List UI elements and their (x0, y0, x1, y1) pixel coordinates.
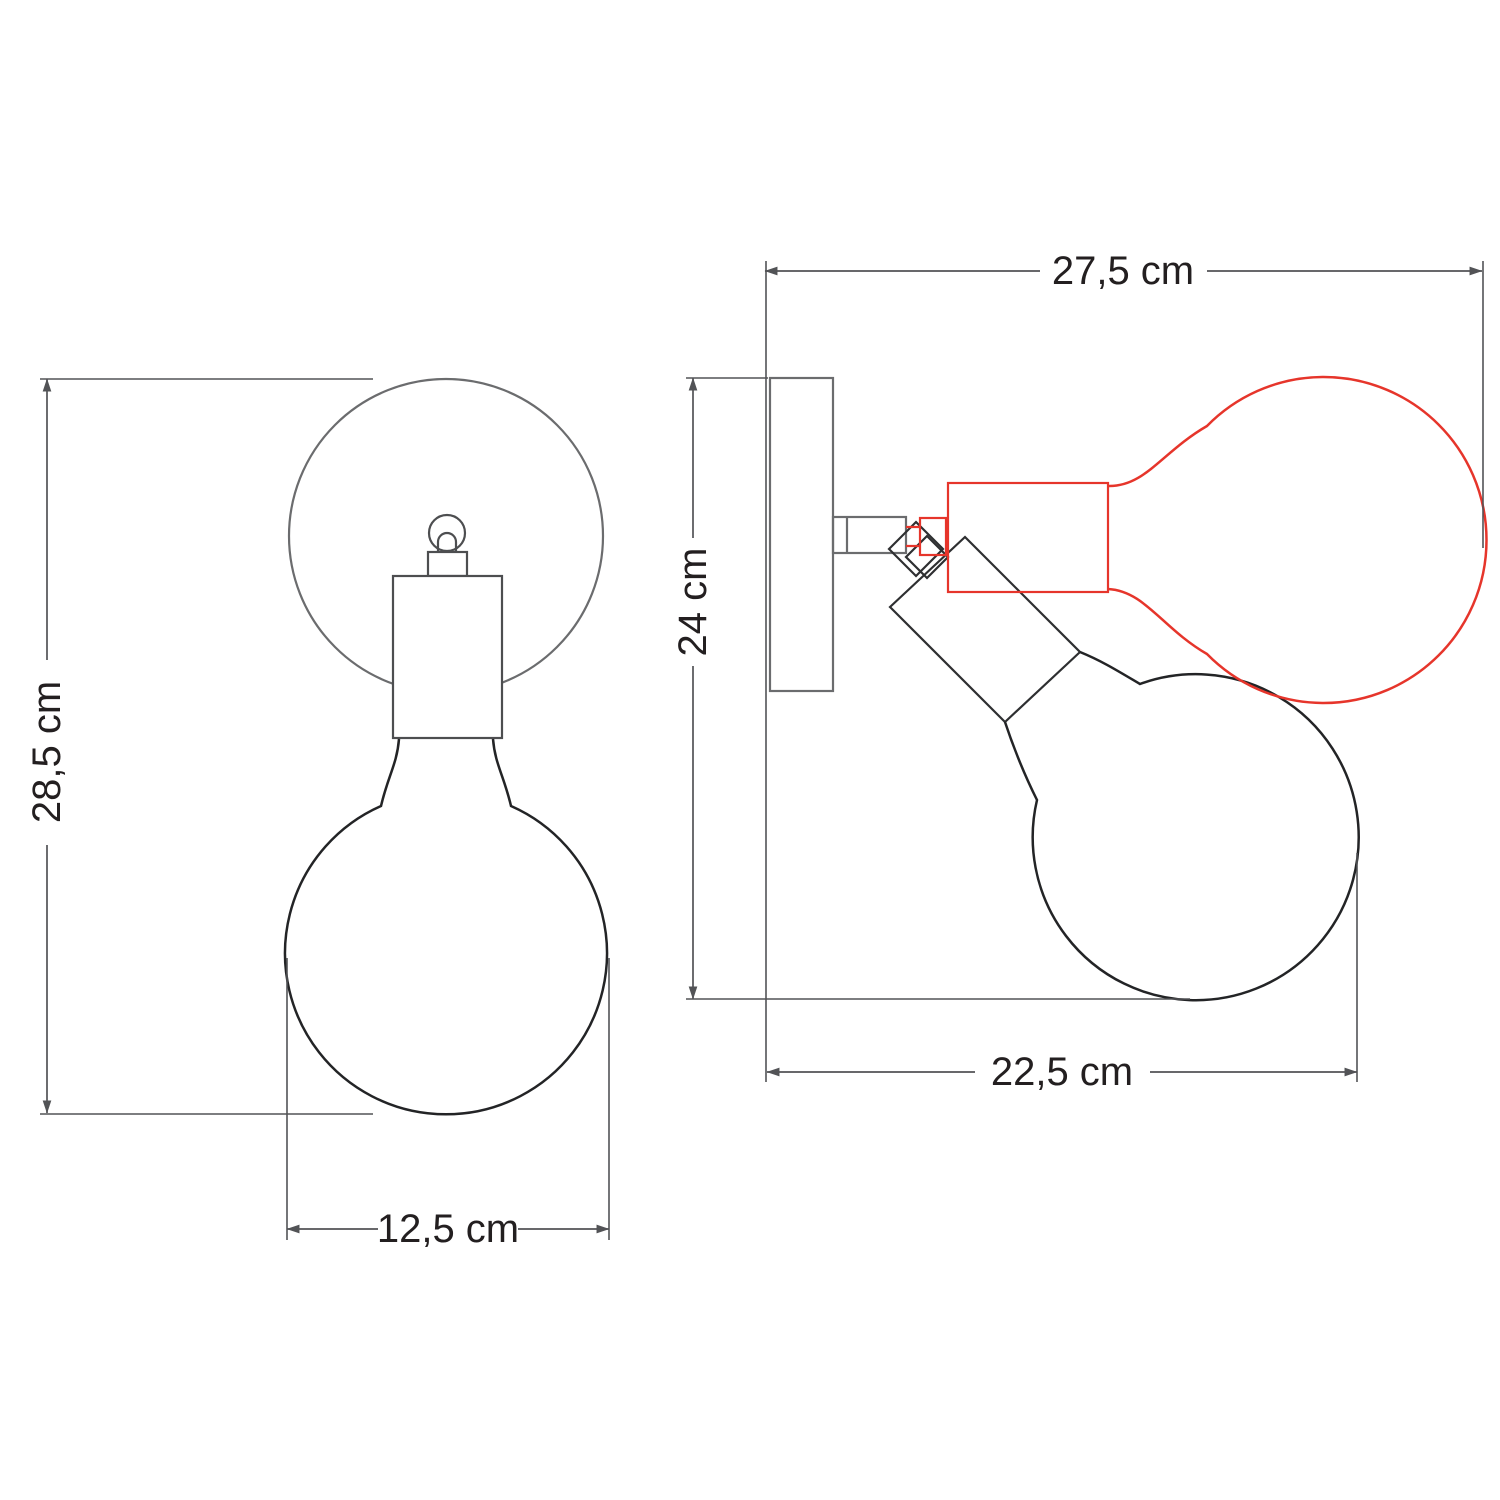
side-bottom-width-label: 22,5 cm (991, 1050, 1133, 1094)
side-height-label: 24 cm (671, 548, 715, 657)
side-pivot-arm (833, 517, 906, 553)
side-bottom-width-dimension: 22,5 cm (767, 853, 1357, 1094)
side-wall-plate (770, 378, 833, 691)
side-lamp-holder-tilted (890, 537, 1080, 722)
front-loop-collar (428, 552, 467, 576)
diagram-canvas: 28,5 cm 12,5 cm (0, 0, 1500, 1500)
red-globe-bulb (1108, 377, 1487, 703)
front-width-dimension: 12,5 cm (287, 958, 609, 1251)
front-height-label: 28,5 cm (25, 681, 69, 823)
side-globe-bulb (1005, 652, 1359, 1000)
front-globe-bulb (285, 739, 607, 1114)
red-lamp-holder-horizontal (948, 483, 1108, 592)
side-view (766, 261, 1487, 1082)
side-top-width-dimension: 27,5 cm (765, 249, 1483, 548)
side-top-width-label: 27,5 cm (1052, 249, 1194, 293)
front-width-label: 12,5 cm (377, 1207, 519, 1251)
wall-lamp-dimension-diagram: 28,5 cm 12,5 cm (0, 0, 1500, 1500)
side-height-dimension: 24 cm (671, 378, 1190, 999)
front-height-dimension: 28,5 cm (25, 379, 373, 1114)
front-lamp-holder (393, 576, 502, 738)
side-alternative-position (906, 377, 1487, 703)
front-view (285, 379, 607, 1114)
